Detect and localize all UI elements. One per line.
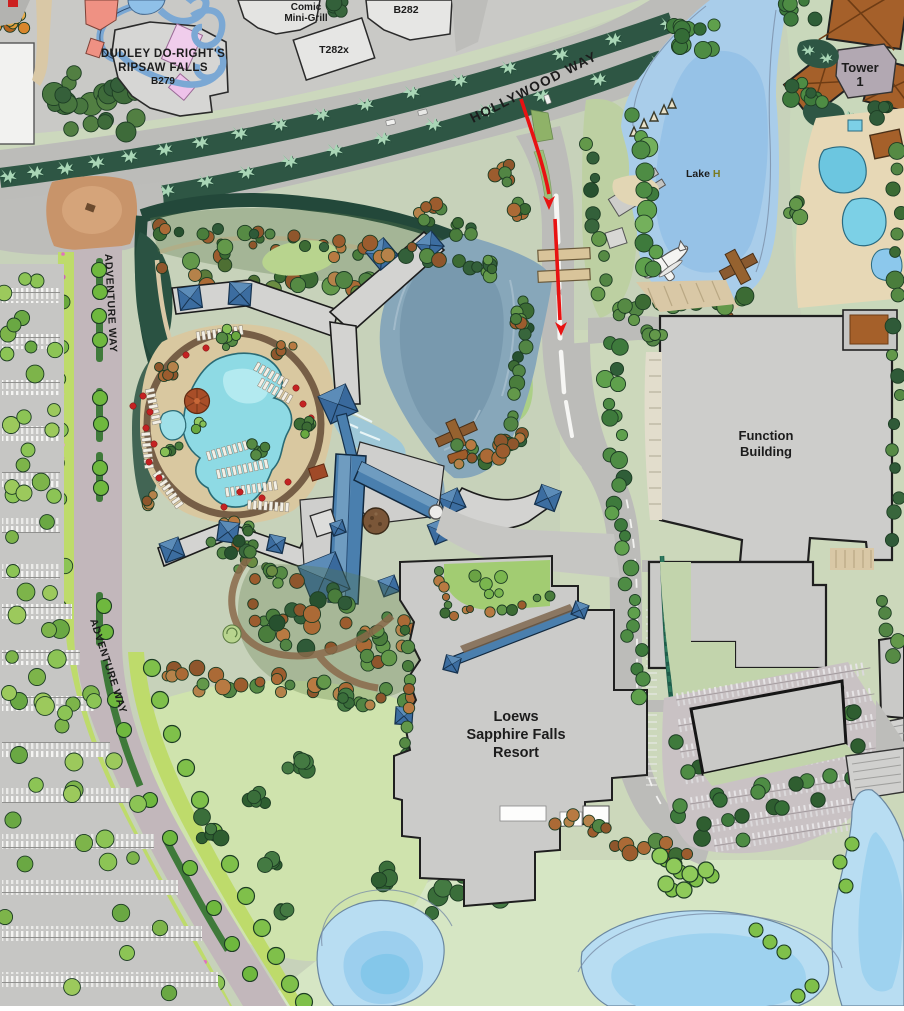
svg-text:B279: B279 (151, 76, 175, 87)
svg-text:Tower: Tower (841, 60, 878, 75)
svg-text:B282: B282 (393, 4, 418, 16)
svg-text:Building: Building (740, 444, 792, 459)
svg-text:Function: Function (739, 428, 794, 443)
svg-text:Resort: Resort (493, 745, 539, 761)
svg-text:1: 1 (856, 74, 863, 89)
svg-text:RIPSAW FALLS: RIPSAW FALLS (118, 62, 208, 74)
svg-text:Loews: Loews (493, 709, 538, 725)
svg-text:Lake H: Lake H (686, 168, 720, 180)
svg-text:Sapphire Falls: Sapphire Falls (466, 727, 565, 743)
svg-text:DUDLEY DO-RIGHT'S: DUDLEY DO-RIGHT'S (101, 48, 225, 60)
svg-text:Comic: Comic (291, 2, 322, 13)
svg-text:Mini-Grill: Mini-Grill (284, 13, 328, 24)
svg-text:T282x: T282x (319, 44, 349, 56)
